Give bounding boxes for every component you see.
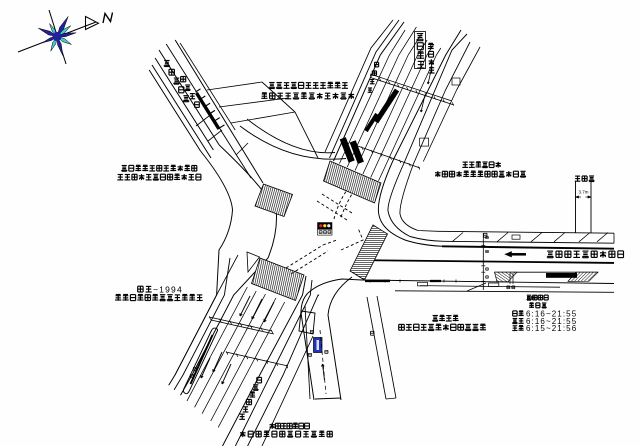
svg-text:6:15~21:56: 6:15~21:56 xyxy=(526,324,577,333)
svg-text:3.7m: 3.7m xyxy=(579,190,589,195)
svg-text:~1994: ~1994 xyxy=(153,284,183,294)
